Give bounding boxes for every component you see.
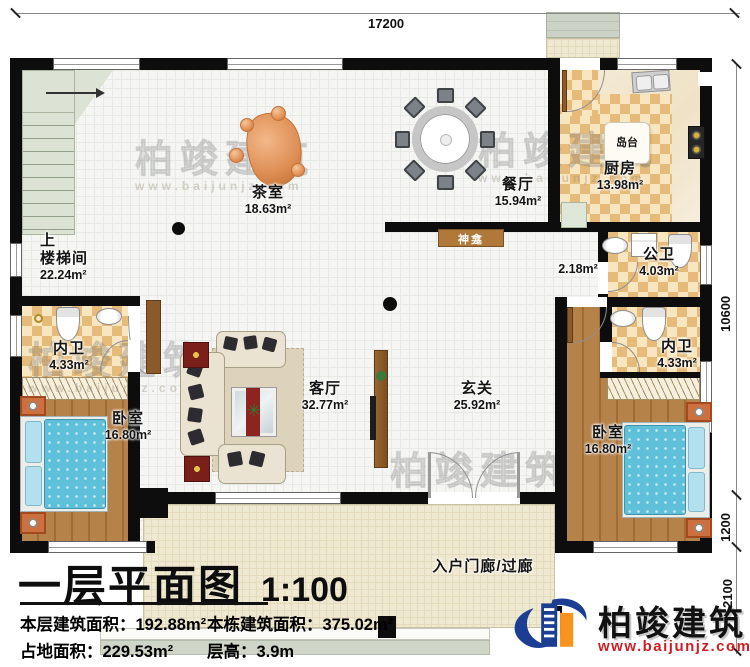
dining-chair-s <box>437 175 454 190</box>
sofa-top-pillow-1 <box>223 336 238 351</box>
side-table-bottom <box>184 456 210 482</box>
wall-corner-notch <box>698 72 712 86</box>
tv-cabinet <box>374 350 388 468</box>
tea-pebble-4 <box>291 163 305 177</box>
bedroom-right-label: 卧室 16.80m² <box>566 424 650 457</box>
column-dot-1 <box>172 222 185 235</box>
dimension-right-upper: 10600 <box>718 268 733 332</box>
shrine-label: 神龛 <box>458 234 484 246</box>
pier-living-south-left <box>140 488 168 518</box>
bath-right-door-opening <box>600 342 612 372</box>
tea-pebble-3 <box>229 148 244 163</box>
kitchen-label: 厨房 13.98m² <box>580 160 660 193</box>
foyer-door-leaf-left <box>428 452 431 498</box>
floor-plan-canvas: 柏竣建筑 www.baijunjz.com 柏竣建筑 www.baijunjz.… <box>0 0 750 667</box>
side-table-top <box>183 342 209 368</box>
porch-label: 入户门廊/过廊 <box>408 558 558 576</box>
stat-storey-height: 层高：3.9m <box>207 638 294 662</box>
window-kitchen <box>617 58 677 70</box>
stair-name-label: 楼梯间 <box>40 250 130 268</box>
brand-logo: 柏竣建筑 www.baijunjz.com <box>505 592 747 664</box>
coffee-table-plant: ✳ <box>245 402 263 420</box>
tea-room-label: 茶室 18.63m² <box>228 184 308 217</box>
stair-treads <box>22 112 75 235</box>
column-dot-2 <box>383 297 397 311</box>
tv-screen <box>370 396 376 440</box>
kitchen-appliance <box>561 202 587 228</box>
pubbath-label: 公卫 4.03m² <box>628 246 690 279</box>
dimension-line-top <box>15 13 740 14</box>
wardrobe-right <box>607 377 700 400</box>
bed-left-pillow-2 <box>25 466 42 506</box>
brand-logo-icon <box>505 594 600 665</box>
nightstand-left-bottom <box>20 512 46 534</box>
corridor-area-label: 2.18m² <box>552 262 604 277</box>
plan-scale: 1:100 <box>261 571 348 609</box>
foyer-door-leaf-right <box>517 452 520 498</box>
window-right-pubbath <box>700 245 712 285</box>
stair-up-arrow <box>46 92 98 94</box>
bath-left-label: 内卫 4.33m² <box>38 340 100 373</box>
bath-right-sink <box>610 310 636 327</box>
living-label: 客厅 32.77m² <box>280 380 370 413</box>
wall-stair-bath <box>22 296 140 306</box>
dimension-line-right <box>736 64 737 654</box>
nightstand-left-top <box>20 396 46 416</box>
bedroom-left-label: 卧室 16.80m² <box>86 410 170 443</box>
window-left-stair <box>10 243 22 277</box>
window-living-south <box>215 492 341 504</box>
title-underline <box>20 602 268 605</box>
sofa-top-pillow-2 <box>243 335 258 350</box>
stat-building-area: 本栋建筑面积：375.02m² <box>207 611 393 635</box>
bed-right-pillow-1 <box>688 427 705 469</box>
kitchen-entry-steps <box>546 12 620 38</box>
stair-area-label: 22.24m² <box>40 268 130 283</box>
pubbath-sink <box>602 237 628 254</box>
foyer-label: 玄关 25.92m² <box>432 380 522 413</box>
tea-pebble-1 <box>240 118 254 132</box>
stat-floor-area: 本层建筑面积：192.88m² <box>20 611 206 635</box>
window-bedroom-right-south <box>593 541 678 553</box>
stair-arrowhead <box>96 88 105 98</box>
stove <box>688 126 705 159</box>
dining-label: 餐厅 15.94m² <box>478 176 558 209</box>
kitchen-door-opening <box>560 58 600 70</box>
window-top-2 <box>227 58 343 70</box>
bed-right-pillow-2 <box>688 472 705 512</box>
bath-left-drain <box>34 314 43 323</box>
wall-bedroom-right-north <box>607 297 712 307</box>
wall-bath-right-south <box>600 372 700 378</box>
stat-land-area: 占地面积：229.53m² <box>20 638 173 662</box>
bedroom-left-door-leaf <box>146 300 161 374</box>
dining-chair-w <box>395 131 410 148</box>
sofa-bottom-pillow-1 <box>227 451 243 467</box>
bath-left-door-opening <box>128 340 140 372</box>
sofa-left-pillow-3 <box>187 407 203 423</box>
dining-chair-n <box>437 88 454 103</box>
island-label: 岛台 <box>616 137 638 149</box>
kitchen-sink-basin-2 <box>653 74 670 90</box>
bed-left-pillow-1 <box>25 421 42 463</box>
dimension-right-mid: 1200 <box>718 500 733 542</box>
dining-chair-e <box>480 131 495 148</box>
bedroom-right-door-opening <box>567 297 607 307</box>
tea-pebble-2 <box>271 106 286 121</box>
nightstand-right-bottom <box>686 518 712 538</box>
kitchen-sink-basin-1 <box>636 75 653 91</box>
window-left-bath <box>10 315 22 357</box>
nightstand-right-top <box>686 402 712 422</box>
kitchen-entry-landing <box>546 38 620 58</box>
kitchen-sink <box>631 70 670 94</box>
wall-mid-horizontal <box>385 222 712 232</box>
dimension-top-value: 17200 <box>368 16 404 31</box>
bath-right-label: 内卫 4.33m² <box>646 338 708 371</box>
shrine-cabinet: 神龛 <box>438 229 504 247</box>
dining-table-center <box>440 134 452 146</box>
window-top-1 <box>53 58 140 70</box>
brand-url: www.baijunjz.com <box>598 638 750 655</box>
kitchen-island: 岛台 <box>604 122 650 164</box>
stairwell-label: 上 楼梯间 22.24m² <box>40 232 130 283</box>
stair-up-label: 上 <box>40 232 130 250</box>
bath-left-sink <box>96 308 122 325</box>
